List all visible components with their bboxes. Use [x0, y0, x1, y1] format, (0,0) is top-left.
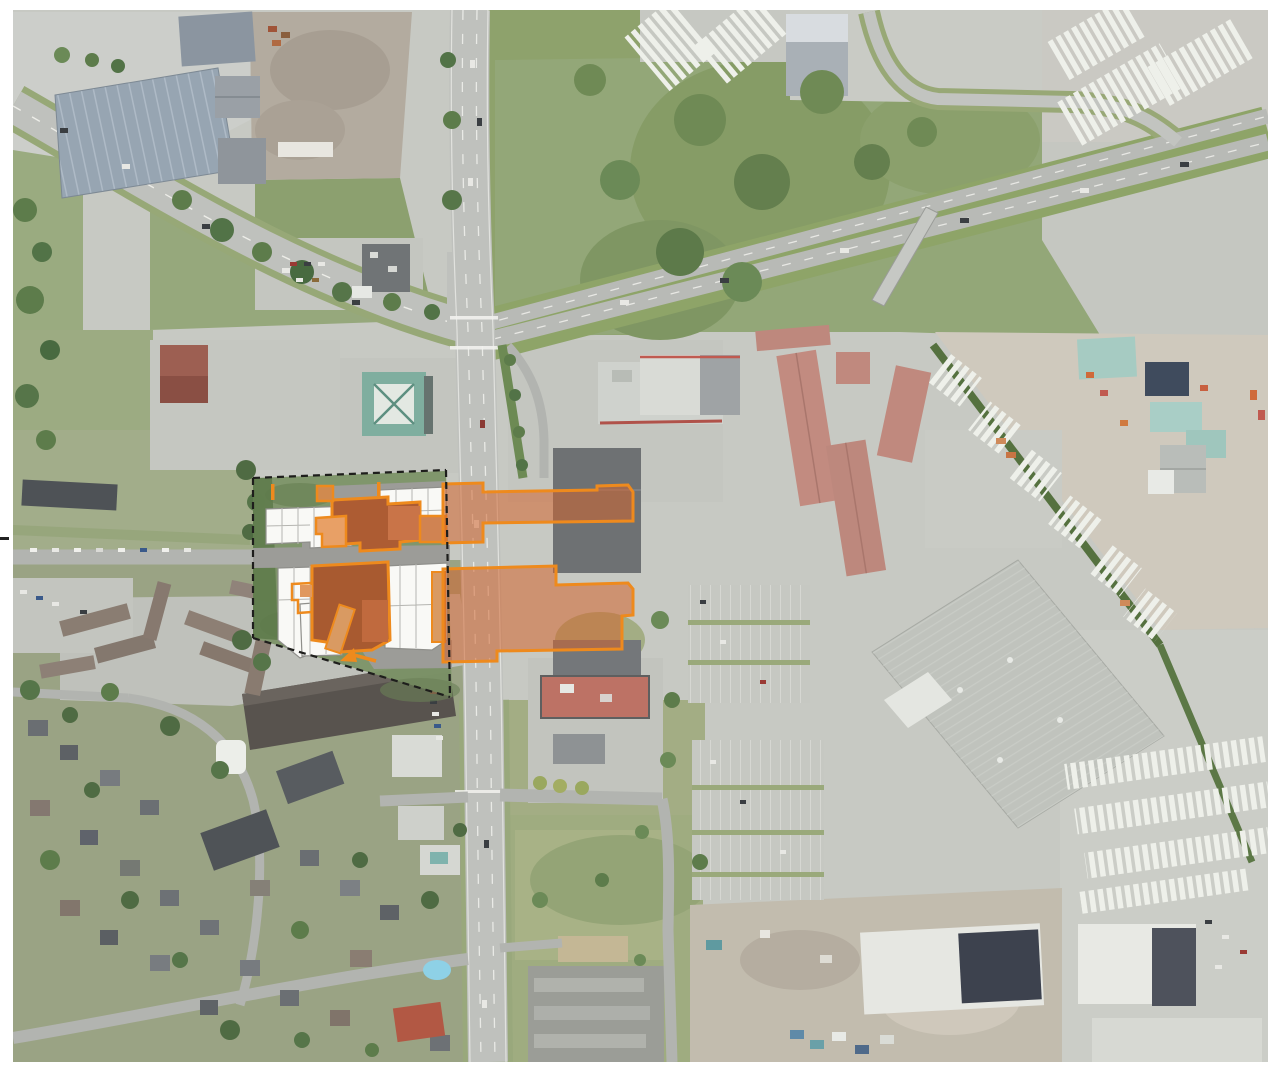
big-box-store — [541, 676, 649, 718]
fast-food-building — [553, 734, 605, 764]
aerial-site-plan-figure: Aerial photograph of a suburban arterial… — [0, 0, 1280, 1071]
restaurant-building — [362, 244, 410, 292]
aerial-photo-canvas: Aerial photograph of a suburban arterial… — [0, 0, 1280, 1071]
crop-mark — [0, 537, 9, 540]
teal-glass-building — [362, 372, 433, 436]
red-roof-house — [393, 1002, 445, 1042]
swimming-pool — [423, 960, 451, 980]
